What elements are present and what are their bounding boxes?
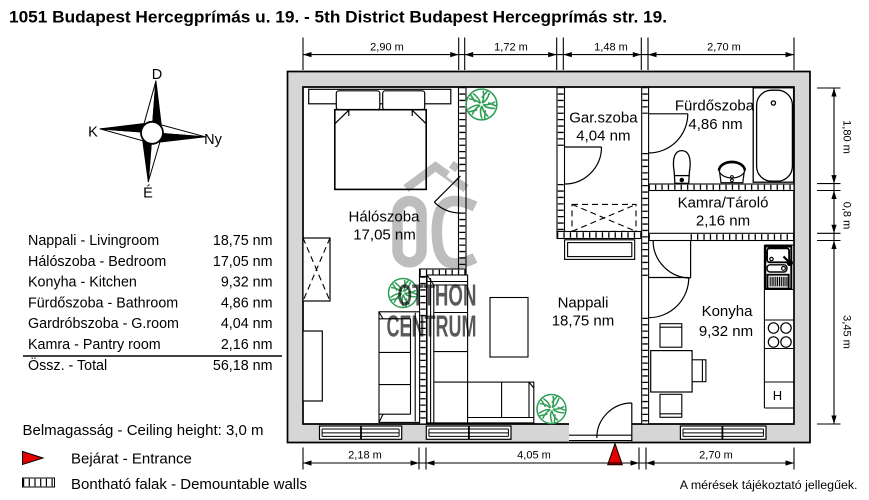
- svg-text:CENTRUM: CENTRUM: [387, 309, 477, 344]
- svg-text:OTTHON: OTTHON: [398, 278, 477, 313]
